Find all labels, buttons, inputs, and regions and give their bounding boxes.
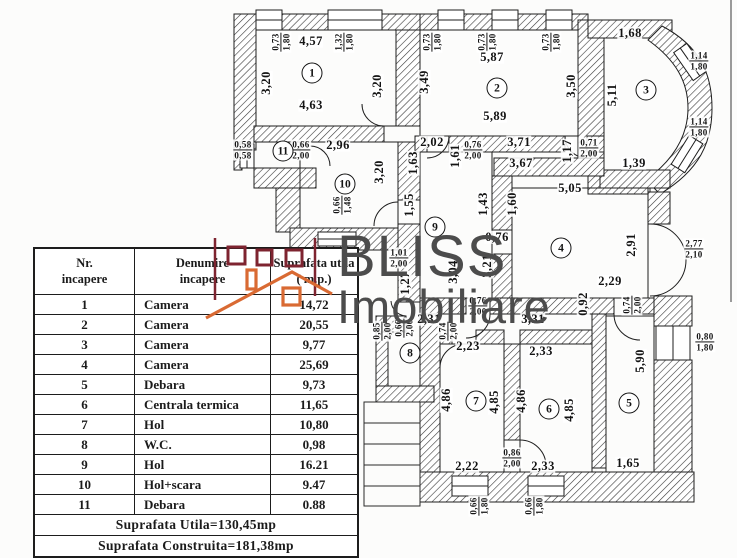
wall-segment bbox=[376, 386, 434, 402]
table-row: 5Debara9,73 bbox=[34, 375, 358, 395]
wall-segment bbox=[578, 20, 604, 176]
wall-segment bbox=[440, 330, 452, 344]
table-row: 9Hol16.21 bbox=[34, 455, 358, 475]
window bbox=[452, 476, 488, 496]
double-door-arc bbox=[650, 224, 686, 260]
wall-segment bbox=[276, 188, 300, 232]
room-outline bbox=[512, 188, 648, 298]
header-suprafata: Suprafata utila ( m.p.) bbox=[271, 248, 359, 295]
header-denumire: Denumire incapere bbox=[135, 248, 271, 295]
wall-segment bbox=[600, 170, 670, 188]
wall-segment bbox=[654, 360, 692, 474]
room-outline bbox=[606, 316, 654, 472]
total-utila: Suprafata Utila=130,45mp bbox=[34, 515, 358, 536]
window bbox=[492, 10, 518, 30]
door-arc bbox=[310, 146, 330, 166]
door-arc bbox=[362, 104, 384, 126]
door-arc bbox=[391, 301, 406, 316]
cell-nr: 9 bbox=[34, 455, 135, 475]
cell-area: 10,80 bbox=[271, 415, 359, 435]
wall-segment bbox=[376, 316, 406, 332]
window bbox=[328, 10, 382, 30]
door-arc bbox=[520, 440, 546, 466]
table-row: 7Hol10,80 bbox=[34, 415, 358, 435]
wall-segment bbox=[494, 158, 604, 176]
wall-segment bbox=[648, 192, 670, 224]
wall-segment bbox=[398, 224, 420, 302]
staircase bbox=[364, 402, 420, 506]
double-door-arc bbox=[650, 260, 686, 296]
table-row: 4Camera25,69 bbox=[34, 355, 358, 375]
wall-segment bbox=[654, 296, 692, 326]
room-outline bbox=[520, 344, 592, 472]
table-row: 1Camera14,72 bbox=[34, 295, 358, 315]
cell-name: W.C. bbox=[135, 435, 271, 455]
cell-name: Camera bbox=[135, 315, 271, 335]
cell-area: 0,98 bbox=[271, 435, 359, 455]
table-header: Nr. incapere Denumire incapere Suprafata… bbox=[34, 248, 358, 295]
table-row: 8W.C.0,98 bbox=[34, 435, 358, 455]
room-area-table: Nr. incapere Denumire incapere Suprafata… bbox=[33, 247, 359, 558]
wall-segment bbox=[490, 298, 614, 314]
window bbox=[438, 10, 464, 30]
window bbox=[240, 144, 254, 168]
cell-area: 9,77 bbox=[271, 335, 359, 355]
cell-area: 9.47 bbox=[271, 475, 359, 495]
table-row: 10Hol+scara9.47 bbox=[34, 475, 358, 495]
table-row: 11Debara0.88 bbox=[34, 495, 358, 515]
cell-name: Centrala termica bbox=[135, 395, 271, 415]
wall-segment bbox=[396, 30, 420, 126]
wall-segment bbox=[587, 136, 604, 152]
cell-area: 9,73 bbox=[271, 375, 359, 395]
window bbox=[528, 476, 564, 496]
cell-name: Camera bbox=[135, 295, 271, 315]
room-outline bbox=[420, 152, 492, 298]
cell-nr: 7 bbox=[34, 415, 135, 435]
wall-segment bbox=[254, 126, 384, 142]
room-outline bbox=[256, 30, 396, 126]
cell-name: Camera bbox=[135, 355, 271, 375]
wall-segment bbox=[234, 14, 256, 150]
cell-nr: 2 bbox=[34, 315, 135, 335]
wall-segment bbox=[420, 298, 466, 314]
wall-segment bbox=[415, 136, 427, 152]
cell-area: 11,65 bbox=[271, 395, 359, 415]
cell-area: 20,55 bbox=[271, 315, 359, 335]
wall-segment bbox=[640, 298, 654, 314]
table-row: 3Camera9,77 bbox=[34, 335, 358, 355]
cell-name: Debara bbox=[135, 495, 271, 515]
wall-segment bbox=[449, 136, 565, 152]
cell-nr: 10 bbox=[34, 475, 135, 495]
cell-name: Hol bbox=[135, 455, 271, 475]
room-outline bbox=[440, 344, 504, 472]
wall-segment bbox=[476, 330, 504, 344]
cell-nr: 8 bbox=[34, 435, 135, 455]
wall-segment bbox=[592, 314, 606, 468]
cell-nr: 3 bbox=[34, 335, 135, 355]
header-nr: Nr. incapere bbox=[34, 248, 135, 295]
scanned-floor-plan-page: 4,570,731,801,321,803,203,204,630,731,80… bbox=[0, 0, 737, 553]
cell-name: Camera bbox=[135, 335, 271, 355]
wall-segment bbox=[492, 254, 512, 298]
cell-name: Hol+scara bbox=[135, 475, 271, 495]
door-arc bbox=[374, 202, 398, 226]
table-footer: Suprafata Utila=130,45mp Suprafata Const… bbox=[34, 515, 358, 558]
room-outline bbox=[420, 30, 578, 136]
cell-area: 25,69 bbox=[271, 355, 359, 375]
wall-segment bbox=[254, 168, 316, 188]
wall-segment bbox=[492, 176, 512, 230]
window bbox=[656, 326, 690, 360]
wall-segment bbox=[376, 332, 388, 386]
cell-nr: 5 bbox=[34, 375, 135, 395]
door-arc bbox=[427, 136, 449, 158]
cell-area: 0.88 bbox=[271, 495, 359, 515]
cell-name: Hol bbox=[135, 415, 271, 435]
room-table-body: 1Camera14,722Camera20,553Camera9,774Came… bbox=[34, 295, 358, 515]
cell-area: 16.21 bbox=[271, 455, 359, 475]
door-arc bbox=[440, 344, 464, 368]
cell-nr: 11 bbox=[34, 495, 135, 515]
window bbox=[318, 232, 356, 246]
cell-area: 14,72 bbox=[271, 295, 359, 315]
cell-nr: 6 bbox=[34, 395, 135, 415]
wall-segment bbox=[520, 330, 592, 344]
wall-segment bbox=[504, 344, 520, 440]
cell-name: Debara bbox=[135, 375, 271, 395]
cell-nr: 4 bbox=[34, 355, 135, 375]
total-construita: Suprafata Construita=181,38mp bbox=[34, 536, 358, 558]
door-arc bbox=[614, 314, 640, 340]
table-row: 2Camera20,55 bbox=[34, 315, 358, 335]
window bbox=[546, 10, 572, 30]
table-row: 6Centrala termica11,65 bbox=[34, 395, 358, 415]
cell-nr: 1 bbox=[34, 295, 135, 315]
window bbox=[256, 10, 282, 30]
